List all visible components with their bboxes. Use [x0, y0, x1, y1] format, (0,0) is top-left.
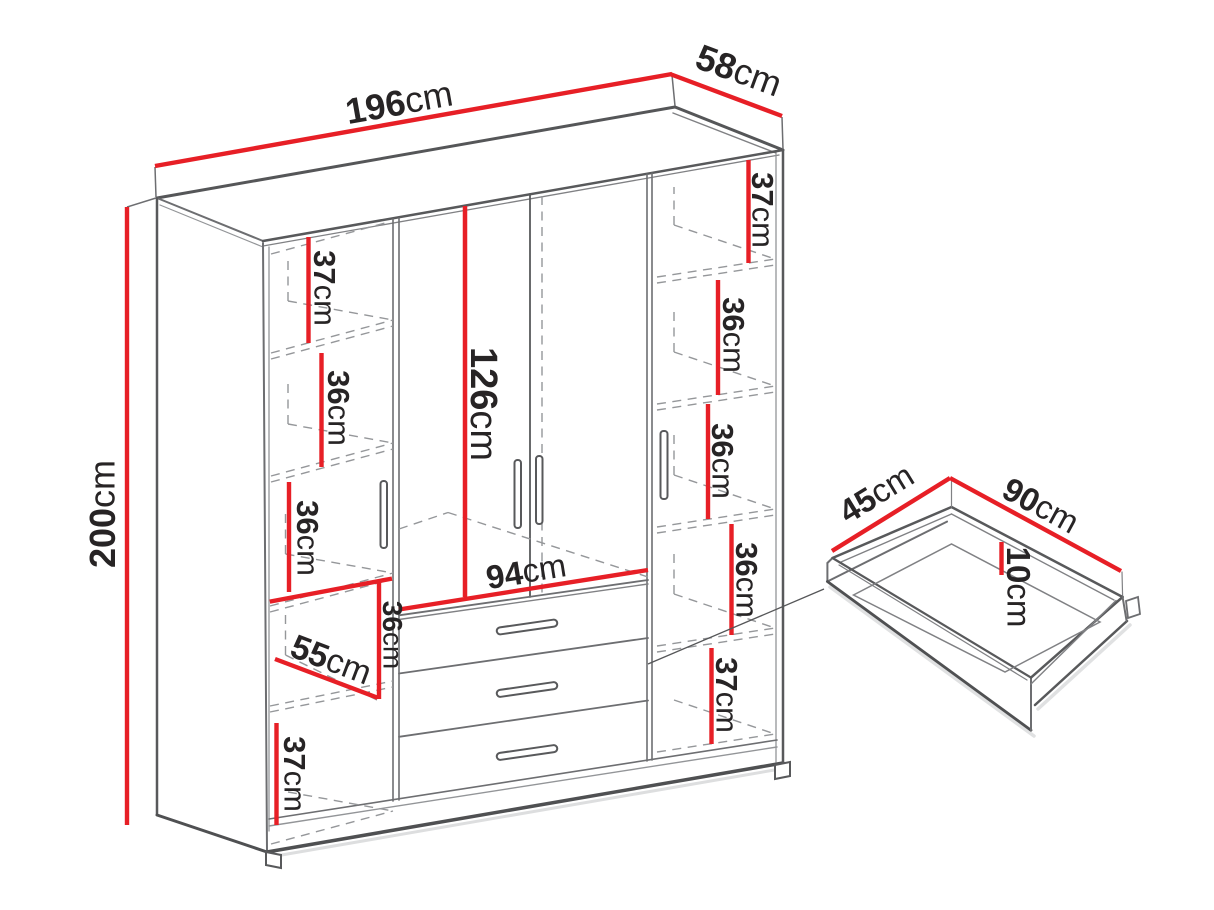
svg-text:36cm: 36cm [706, 423, 741, 499]
svg-text:37cm: 37cm [308, 250, 343, 326]
svg-text:36cm: 36cm [378, 601, 409, 669]
svg-text:37cm: 37cm [710, 657, 745, 733]
svg-text:126cm: 126cm [462, 347, 504, 461]
svg-text:37cm: 37cm [278, 736, 313, 812]
svg-text:36cm: 36cm [322, 370, 357, 446]
svg-text:10cm: 10cm [1001, 547, 1038, 628]
svg-text:36cm: 36cm [730, 542, 765, 618]
svg-text:36cm: 36cm [717, 297, 752, 373]
svg-text:200cm: 200cm [82, 460, 123, 568]
svg-text:36cm: 36cm [291, 500, 326, 576]
svg-text:37cm: 37cm [746, 172, 781, 248]
